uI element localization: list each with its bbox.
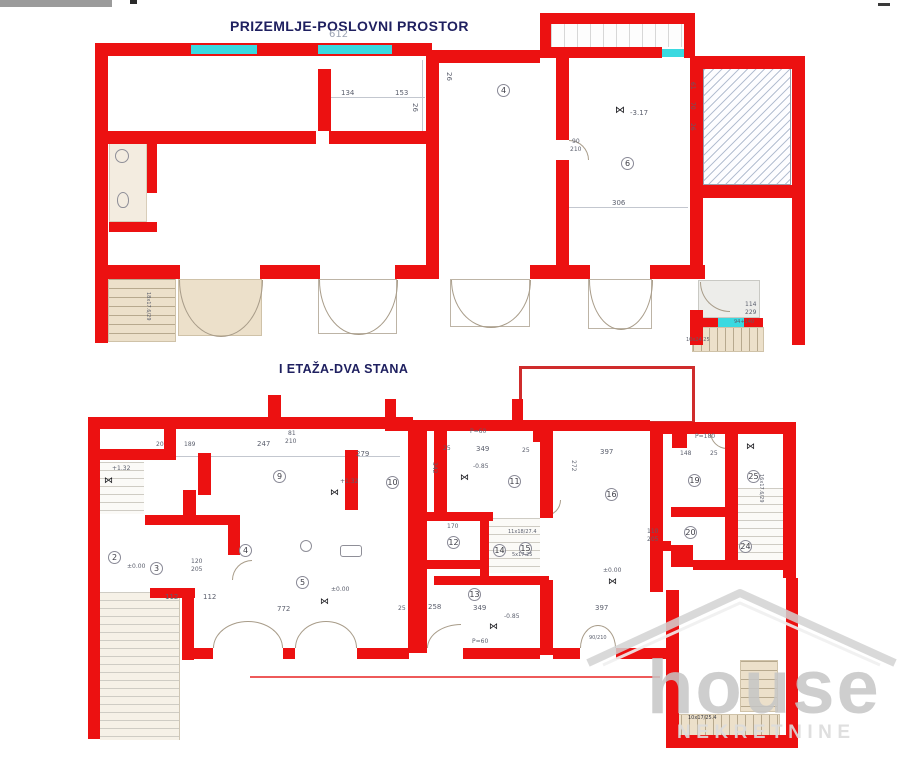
dimension-label: 110 bbox=[647, 529, 658, 535]
dimension-label: 25 bbox=[710, 451, 718, 457]
room-number: 19 bbox=[688, 474, 701, 487]
dimension-label: 210 bbox=[285, 439, 296, 445]
dimension-label: 397 bbox=[600, 449, 613, 456]
dimension-label: 25 bbox=[398, 606, 406, 612]
dimension-label: 112 bbox=[203, 594, 216, 601]
room-number: 24 bbox=[739, 540, 752, 553]
room-number: 10 bbox=[386, 476, 399, 489]
section-marker: ⋈ bbox=[330, 489, 339, 498]
dimension-label: 397 bbox=[595, 605, 608, 612]
room-number: 14 bbox=[493, 544, 506, 557]
section-marker: ⋈ bbox=[320, 598, 329, 607]
section-marker: ⋈ bbox=[746, 443, 755, 452]
dimension-label: 247 bbox=[257, 441, 270, 448]
room-number: 3 bbox=[150, 562, 163, 575]
room-number: 9 bbox=[273, 470, 286, 483]
dimension-label: 90/210 bbox=[589, 636, 607, 641]
room-number: 4 bbox=[239, 544, 252, 557]
scan-tick-mark bbox=[130, 0, 137, 4]
dimension-label: 342 bbox=[431, 462, 437, 473]
section-marker: ⋈ bbox=[460, 474, 469, 483]
section-marker: ⋈ bbox=[104, 477, 113, 486]
dimension-label: 11x18/27.4 bbox=[508, 530, 537, 535]
dimension-label: 25 bbox=[522, 448, 530, 454]
dimension-label: +1.32 bbox=[112, 466, 130, 472]
room-number: 11 bbox=[508, 475, 521, 488]
dimension-label: 272 bbox=[570, 460, 576, 471]
dimension-label: 5x17.25 bbox=[512, 553, 532, 558]
dimension-label: P=60 bbox=[470, 429, 486, 435]
dimension-label: 120 bbox=[191, 559, 202, 565]
section-marker: ⋈ bbox=[489, 623, 498, 632]
room-number: 12 bbox=[447, 536, 460, 549]
dimension-label: P=60 bbox=[472, 639, 488, 645]
dimension-label: -0.85 bbox=[473, 464, 489, 470]
dimension-label: ±0.00 bbox=[331, 587, 349, 593]
dimension-label: 205 bbox=[647, 537, 658, 543]
dimension-label: 349 bbox=[473, 605, 486, 612]
dimension-label: 25 bbox=[443, 446, 451, 452]
dimension-label: 16x17.6/29 bbox=[758, 474, 763, 503]
room-number: 20 bbox=[684, 526, 697, 539]
scan-dash-mark bbox=[878, 3, 890, 6]
room-number: 13 bbox=[468, 588, 481, 601]
room-number: 5 bbox=[296, 576, 309, 589]
dimension-label: P=180 bbox=[695, 434, 715, 440]
dimension-label: 148 bbox=[680, 451, 691, 457]
dimension-label: ±0.00 bbox=[603, 568, 621, 574]
dimension-label: -0.85 bbox=[504, 614, 520, 620]
first-floor-labels-layer: 2018924781210279+1.32⋈9+1.32⋈10P=6025349… bbox=[0, 0, 904, 768]
floorplan-photo: PRIZEMLJE-POSLOVNI PROSTOR I ETAŽA-DVA S… bbox=[0, 0, 904, 768]
dimension-label: 205 bbox=[191, 567, 202, 573]
dimension-label: +1.32 bbox=[340, 479, 358, 485]
dimension-label: 20 bbox=[156, 442, 164, 448]
dimension-label: 81 bbox=[288, 431, 296, 437]
dimension-label: 349 bbox=[476, 446, 489, 453]
scrollbar-artifact bbox=[0, 0, 112, 7]
dimension-label: 112 bbox=[165, 594, 178, 601]
dimension-label: 279 bbox=[356, 451, 369, 458]
room-number: 16 bbox=[605, 488, 618, 501]
dimension-label: ±0.00 bbox=[127, 564, 145, 570]
dimension-label: 10x17/25.4 bbox=[688, 716, 717, 721]
dimension-label: 258 bbox=[428, 604, 441, 611]
dimension-label: 189 bbox=[184, 442, 195, 448]
section-marker: ⋈ bbox=[608, 578, 617, 587]
room-number: 2 bbox=[108, 551, 121, 564]
dimension-label: 170 bbox=[447, 524, 458, 530]
dimension-label: 772 bbox=[277, 606, 290, 613]
